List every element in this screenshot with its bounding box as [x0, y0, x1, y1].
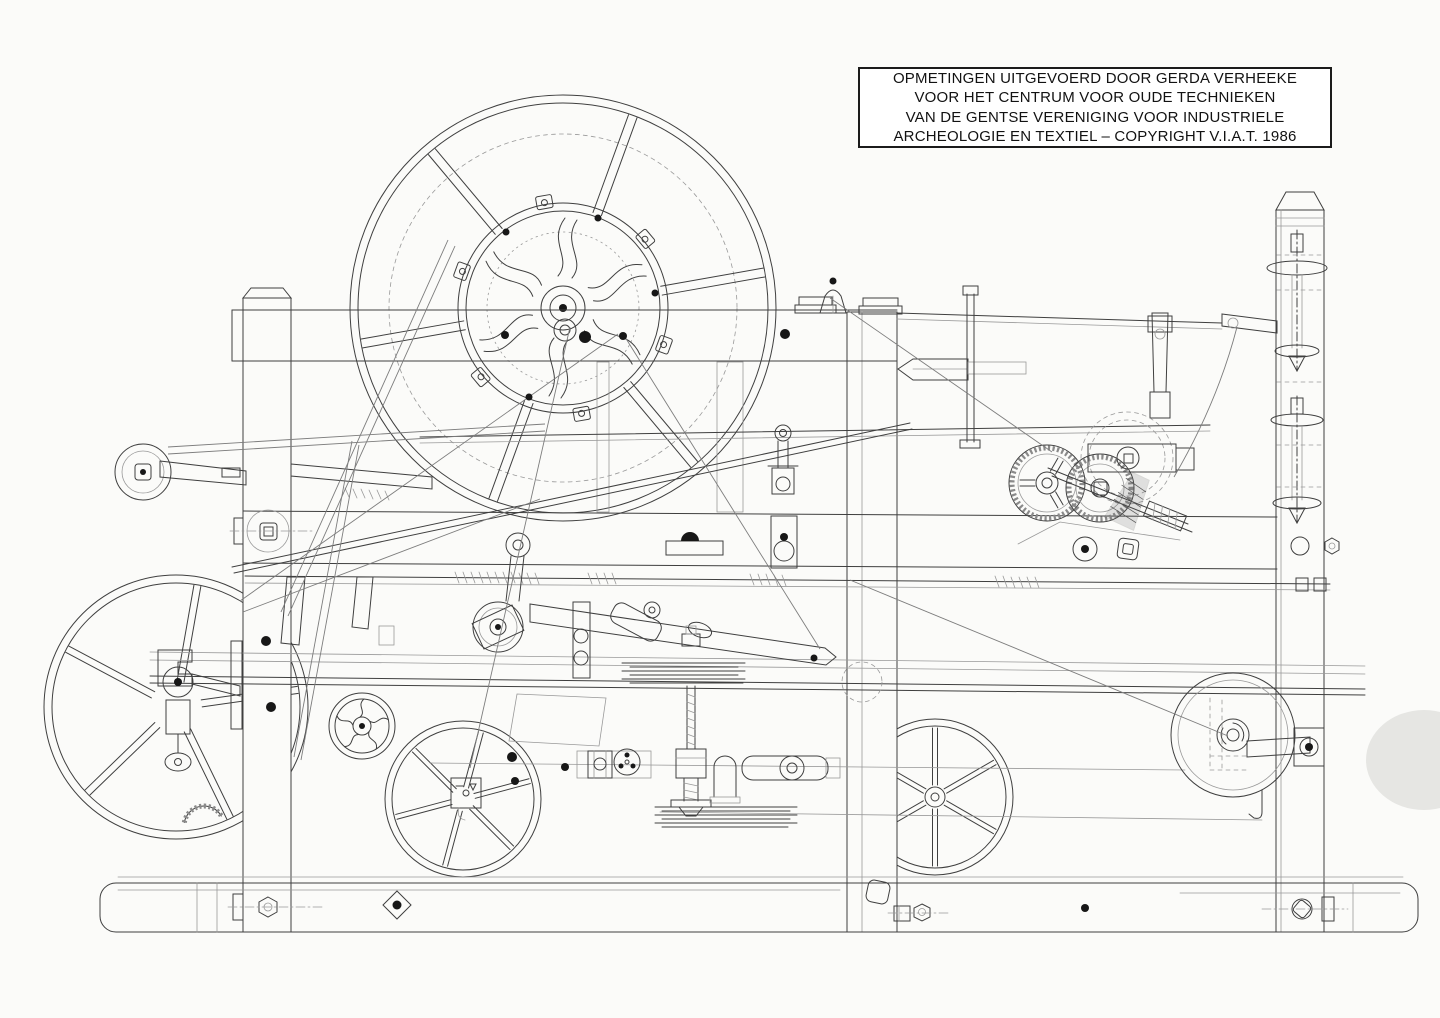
- copyright-title-box: OPMETINGEN UITGEVOERD DOOR GERDA VERHEEK…: [858, 67, 1332, 148]
- scanned-technical-drawing-page: OPMETINGEN UITGEVOERD DOOR GERDA VERHEEK…: [0, 0, 1440, 1018]
- machine-drawing: [0, 0, 1440, 1018]
- hanging-link-left: [768, 425, 798, 568]
- bottom-shaft-parts: [507, 749, 840, 803]
- carriage-wheel-left: [385, 721, 541, 877]
- title-line-1: OPMETINGEN UITGEVOERD DOOR GERDA VERHEEK…: [860, 69, 1330, 88]
- wheel-support-leg: [717, 362, 743, 512]
- frame-rails: [100, 310, 1418, 932]
- scan-smudge: [1366, 710, 1440, 810]
- title-line-3: VAN DE GENTSE VERENIGING VOOR INDUSTRIEL…: [860, 108, 1330, 127]
- headstock-gear-cluster: [1009, 412, 1194, 561]
- title-line-4: ARCHEOLOGIE EN TEXTIEL – COPYRIGHT V.I.A…: [860, 127, 1330, 146]
- frame-posts: [243, 192, 1324, 932]
- faller-mechanism: [622, 626, 797, 827]
- hanging-link-right: [1148, 313, 1172, 418]
- title-line-2: VOOR HET CENTRUM VOOR OUDE TECHNIEKEN: [860, 88, 1330, 107]
- flywheel-crank-assembly: [158, 641, 242, 823]
- top-rail-clamps: [795, 278, 902, 315]
- shelf-plate: [666, 532, 723, 555]
- fasteners: [228, 879, 1348, 921]
- carriage-wheel-hub-plate: [451, 778, 481, 820]
- drive-wheel: [350, 95, 776, 521]
- tin-pointer: [898, 286, 1026, 448]
- small-wavy-wheel: [329, 693, 395, 759]
